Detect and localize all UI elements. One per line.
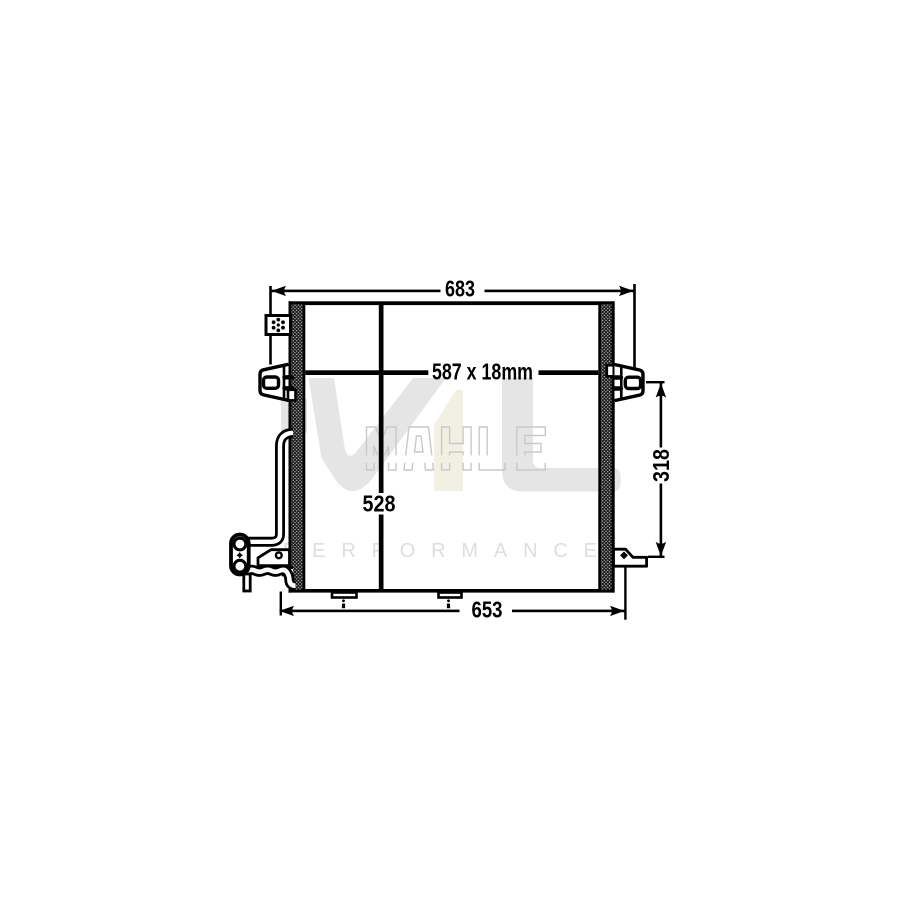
svg-text:683: 683 <box>445 276 475 302</box>
svg-text:653: 653 <box>472 597 503 623</box>
svg-text:587 x 18mm: 587 x 18mm <box>432 359 533 385</box>
svg-text:318: 318 <box>648 449 674 482</box>
svg-text:528: 528 <box>363 491 396 517</box>
